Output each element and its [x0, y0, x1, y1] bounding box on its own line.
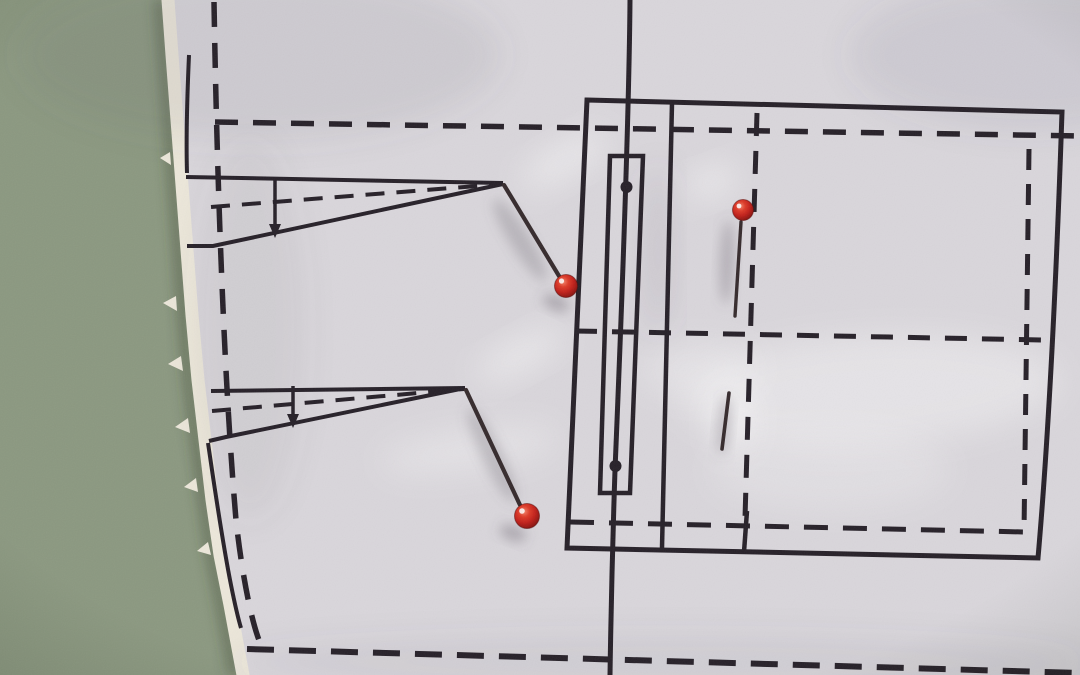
photo-root — [0, 0, 1080, 675]
scene-layer — [0, 0, 1080, 675]
sewing-pattern-photo — [0, 0, 1080, 675]
photo-grain — [0, 0, 1080, 675]
